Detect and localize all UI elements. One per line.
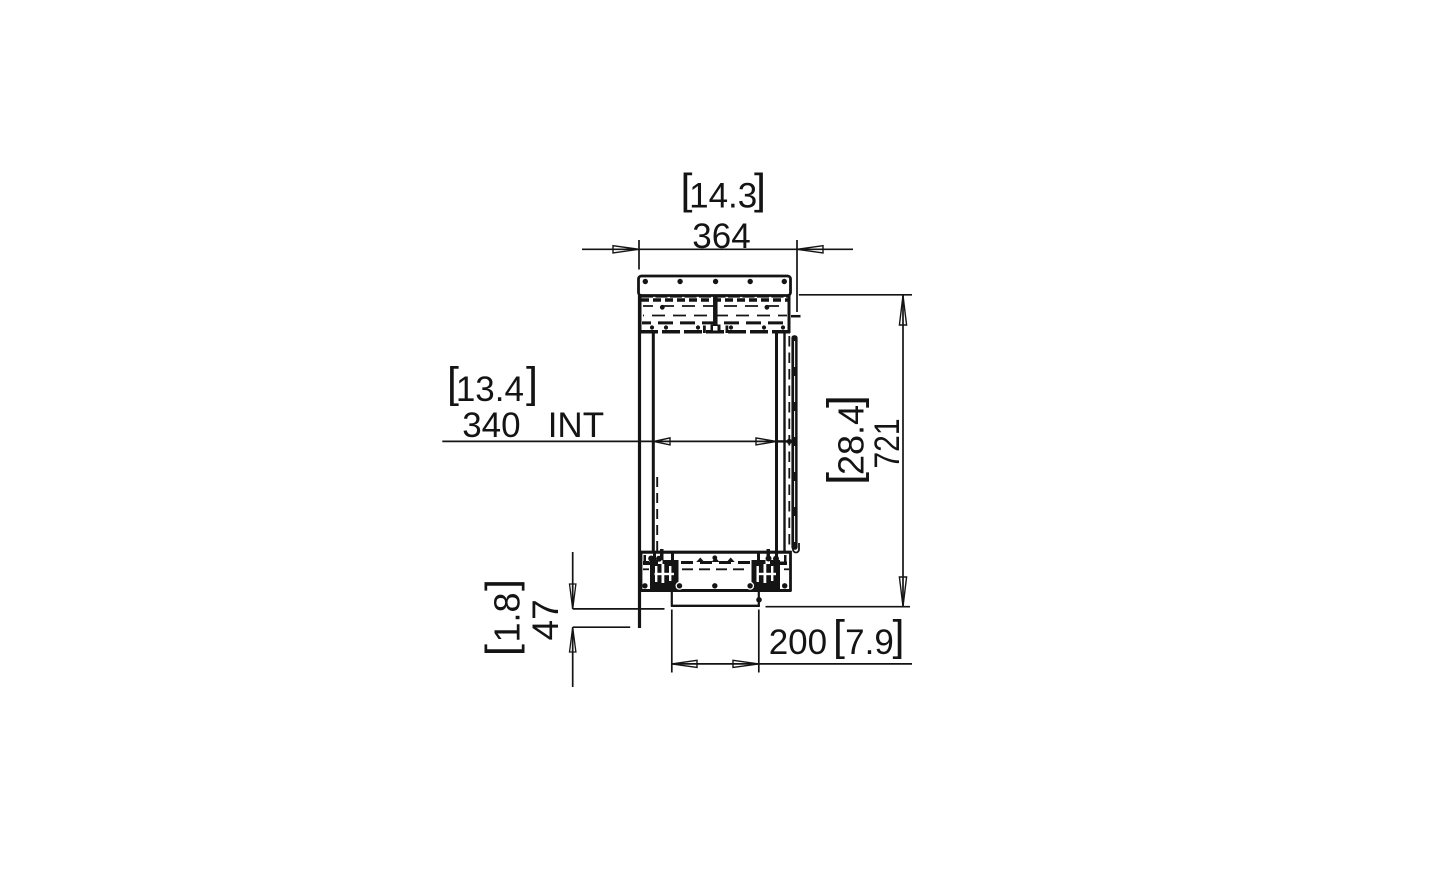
svg-text:364: 364: [692, 217, 750, 256]
svg-text:INT: INT: [548, 406, 604, 445]
svg-text:47: 47: [525, 599, 566, 640]
svg-text:]: ]: [754, 166, 766, 214]
svg-text:[: [: [833, 612, 845, 660]
svg-text:]: ]: [893, 612, 905, 660]
svg-text:721: 721: [868, 419, 907, 469]
svg-text:13.4: 13.4: [456, 370, 524, 409]
svg-text:28.4: 28.4: [831, 405, 872, 475]
svg-text:340: 340: [462, 406, 520, 445]
svg-text:7.9: 7.9: [845, 623, 894, 662]
svg-text:14.3: 14.3: [689, 177, 757, 216]
svg-text:[: [: [447, 359, 459, 407]
svg-text:]: ]: [526, 359, 538, 407]
svg-text:]: ]: [818, 395, 870, 408]
svg-text:[: [: [818, 472, 870, 485]
svg-text:[: [: [478, 644, 526, 656]
svg-text:1.8: 1.8: [487, 592, 528, 642]
svg-text:]: ]: [478, 579, 526, 591]
svg-text:[: [: [681, 166, 693, 214]
svg-text:200: 200: [769, 623, 827, 662]
